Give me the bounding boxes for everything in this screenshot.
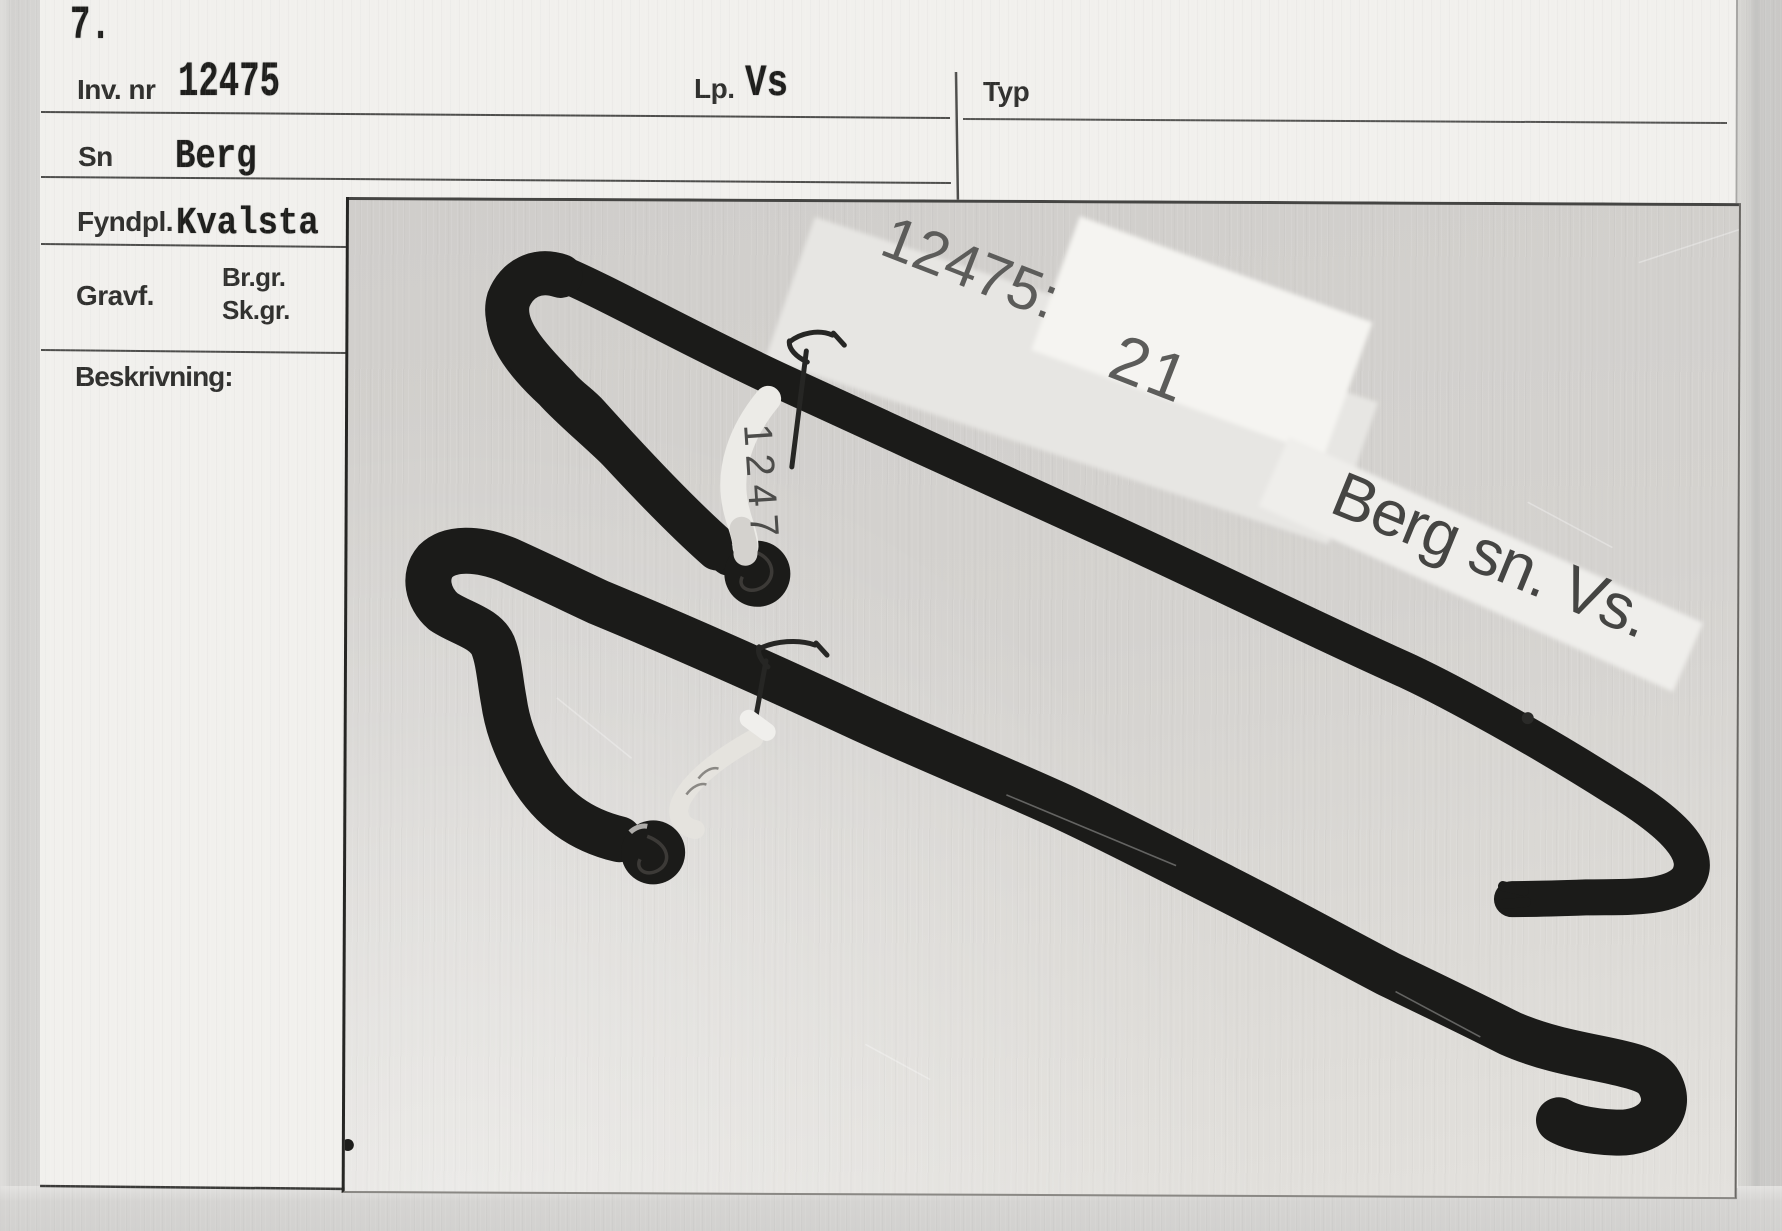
svg-text:1247: 1247 xyxy=(735,422,787,546)
